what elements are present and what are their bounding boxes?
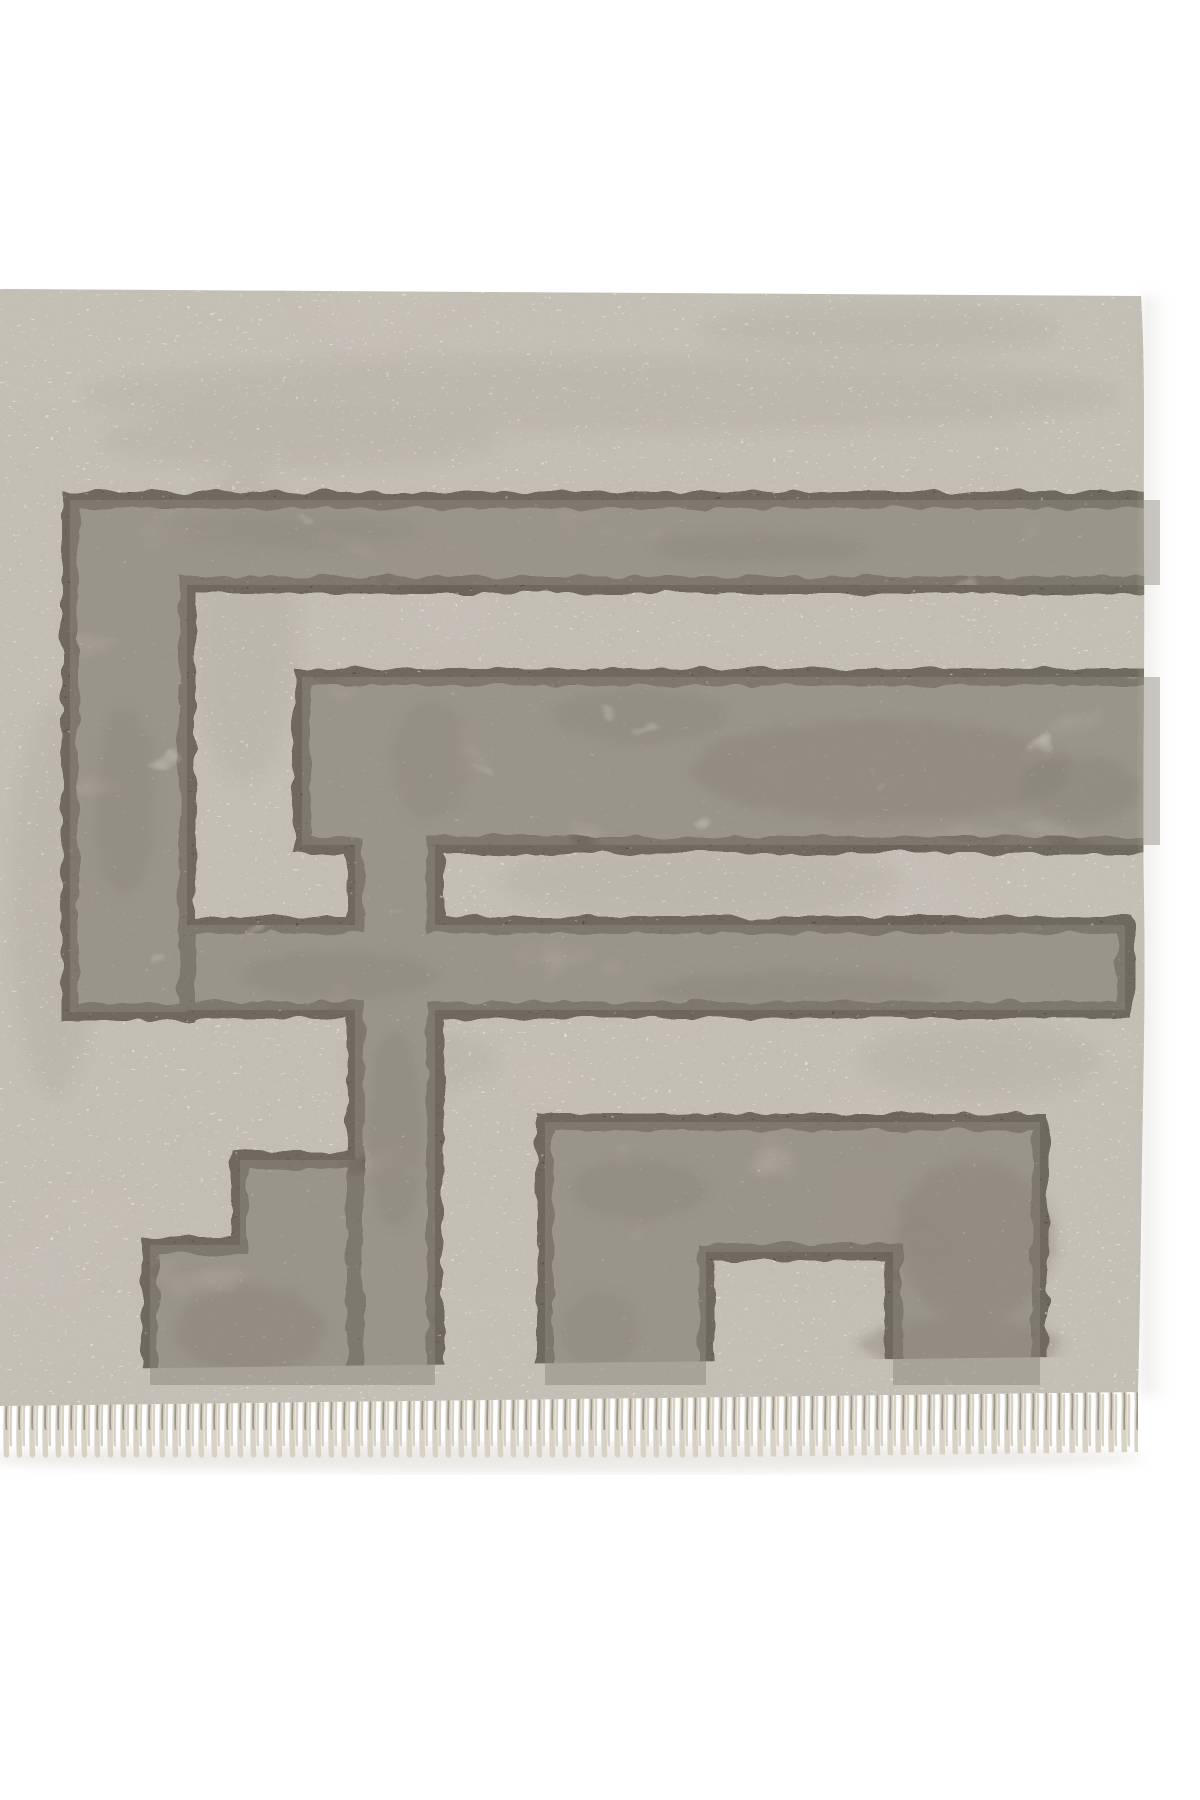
rug-photo [0,0,1200,1800]
rug-edge-shadow [1141,296,1175,1396]
product-photo-stage [0,0,1200,1800]
